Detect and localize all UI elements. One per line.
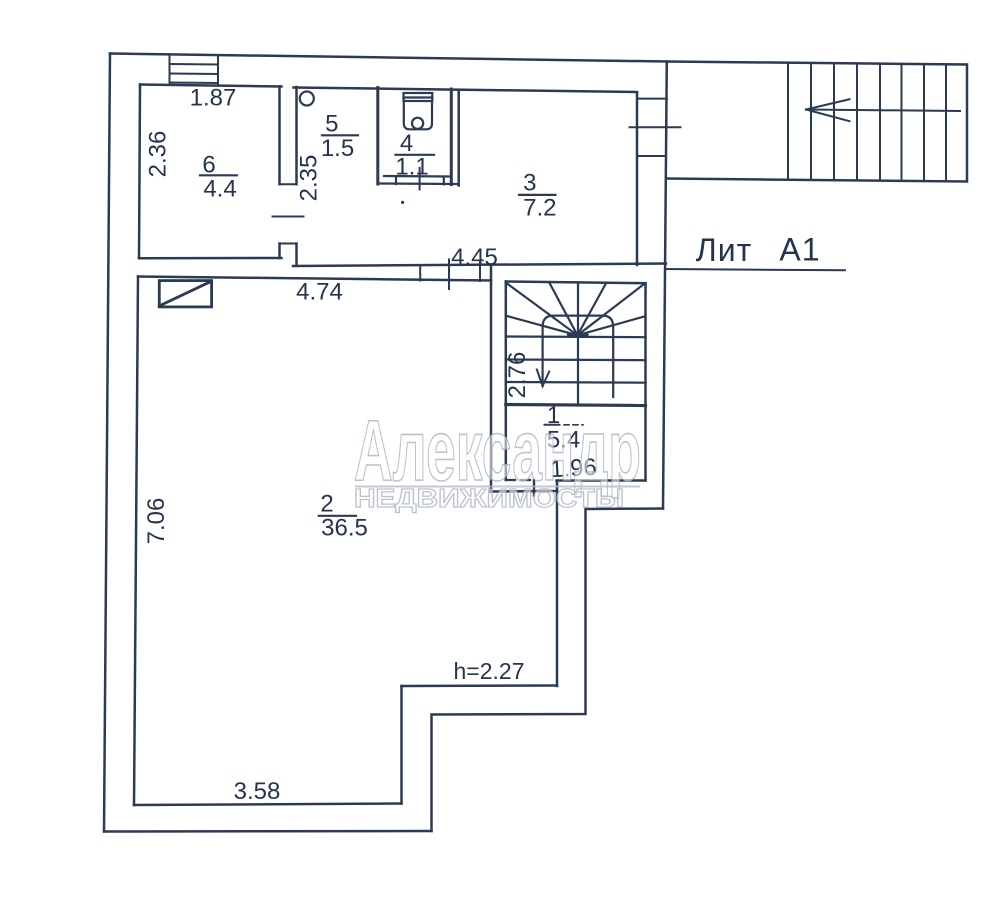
svg-text:2.76: 2.76 bbox=[504, 352, 531, 399]
svg-text:1.87: 1.87 bbox=[190, 84, 237, 111]
svg-text:3.58: 3.58 bbox=[234, 778, 281, 805]
svg-text:4.74: 4.74 bbox=[296, 279, 343, 306]
svg-text:5: 5 bbox=[325, 111, 338, 138]
svg-text:6: 6 bbox=[202, 152, 215, 179]
svg-text:2: 2 bbox=[320, 491, 333, 518]
svg-text:7.06: 7.06 bbox=[143, 498, 170, 545]
svg-text:1.1: 1.1 bbox=[395, 154, 428, 181]
svg-text:3: 3 bbox=[523, 170, 536, 197]
svg-text:4.45: 4.45 bbox=[451, 244, 498, 271]
svg-text:2.36: 2.36 bbox=[145, 131, 172, 178]
svg-text:НЕДВИЖИМОСТЫ: НЕДВИЖИМОСТЫ bbox=[354, 483, 624, 513]
svg-text:2.35: 2.35 bbox=[296, 155, 323, 202]
svg-text:4.4: 4.4 bbox=[203, 176, 236, 203]
svg-text:h=2.27: h=2.27 bbox=[454, 658, 525, 684]
svg-text:36.5: 36.5 bbox=[321, 515, 368, 542]
svg-text:А1: А1 bbox=[779, 232, 820, 268]
svg-text:7.2: 7.2 bbox=[523, 195, 556, 222]
svg-text:Лит: Лит bbox=[696, 232, 753, 268]
svg-text:1.5: 1.5 bbox=[321, 135, 354, 162]
